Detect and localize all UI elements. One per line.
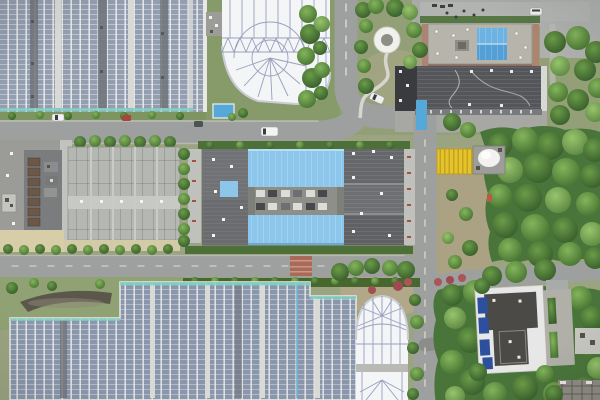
aerial-photo: Top-down drone photo of an industrial tr… bbox=[0, 0, 600, 400]
photo-vignette bbox=[0, 0, 600, 400]
aerial-scene: Top-down drone photo of an industrial tr… bbox=[0, 0, 600, 400]
